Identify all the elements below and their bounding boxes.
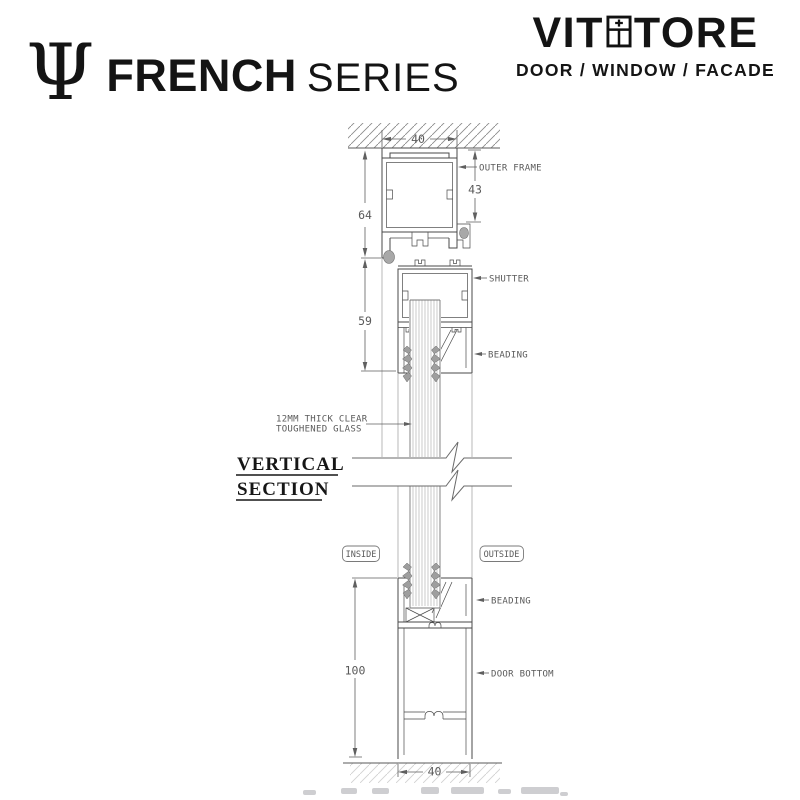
- dim-top-width: 40: [411, 132, 425, 146]
- label-shutter: SHUTTER: [473, 275, 529, 285]
- glass-pane: [409, 296, 441, 608]
- section-title: VERTICAL SECTION: [236, 454, 345, 500]
- section-title-line1: VERTICAL: [237, 454, 345, 475]
- outside-text: OUTSIDE: [484, 550, 520, 560]
- page: Ψ FRENCH SERIES VIT TORE DOOR / WINDOW /…: [0, 0, 800, 800]
- door-bottom-text: DOOR BOTTOM: [491, 670, 554, 680]
- dim-bottom-width: 40: [428, 765, 442, 779]
- shutter-text: SHUTTER: [489, 275, 529, 285]
- section-title-line2: SECTION: [237, 479, 330, 500]
- floor-hatch-bottom: [343, 763, 502, 783]
- outer-frame-profile: [382, 148, 470, 258]
- dim-frame-face: 43: [468, 183, 482, 197]
- outside-badge: OUTSIDE: [480, 546, 524, 562]
- label-glass: 12MM THICK CLEAR TOUGHENED GLASS: [276, 415, 412, 435]
- inside-text: INSIDE: [346, 550, 377, 560]
- dimension-door-bottom-height: 100: [345, 578, 397, 757]
- label-door-bottom: DOOR BOTTOM: [476, 670, 554, 680]
- beading-top-text: BEADING: [488, 351, 528, 361]
- dim-shutter-height: 59: [358, 314, 372, 328]
- dimension-frame-face: 43: [466, 150, 482, 222]
- glass-text-line1: 12MM THICK CLEAR: [276, 415, 368, 425]
- outer-frame-text: OUTER FRAME: [479, 164, 542, 174]
- inside-badge: INSIDE: [343, 546, 380, 562]
- label-beading-top: BEADING: [474, 351, 528, 361]
- dimension-outer-frame-height: 64: [358, 151, 381, 259]
- label-outer-frame: OUTER FRAME: [458, 164, 542, 174]
- dim-outer-frame-height: 64: [358, 208, 372, 222]
- glass-text-line2: TOUGHENED GLASS: [276, 425, 362, 435]
- beading-bottom-text: BEADING: [491, 597, 531, 607]
- label-beading-bottom: BEADING: [476, 597, 531, 607]
- dimension-shutter-height: 59: [358, 259, 396, 371]
- watermark-remnant: [303, 787, 568, 796]
- dim-door-bottom-height: 100: [345, 664, 366, 678]
- vertical-section-drawing: 40 64 43 59 100: [0, 0, 800, 800]
